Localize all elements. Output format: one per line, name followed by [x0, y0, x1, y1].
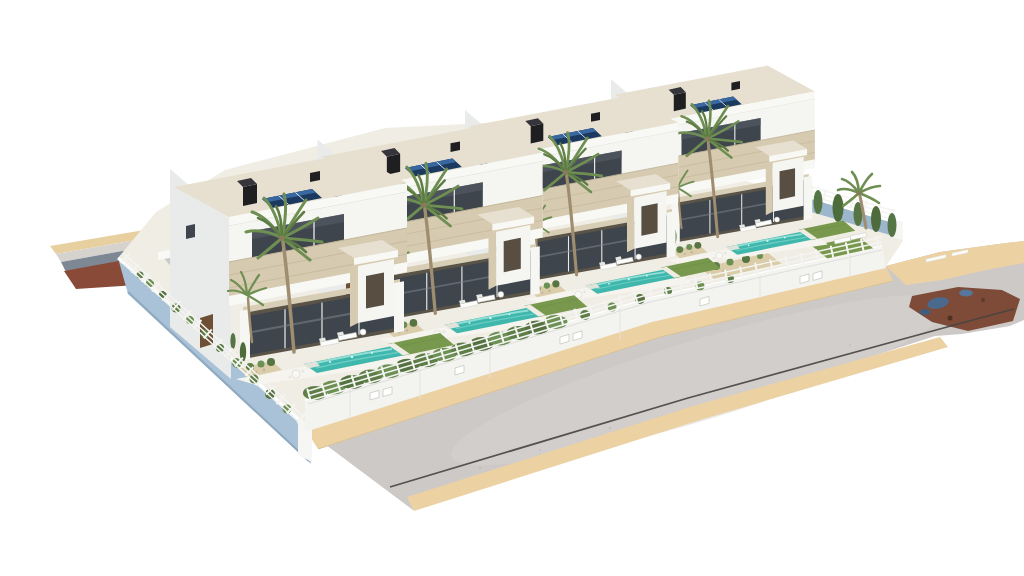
render-stage	[0, 0, 1024, 576]
palm-crown	[857, 191, 862, 196]
render-svg	[0, 0, 1024, 576]
